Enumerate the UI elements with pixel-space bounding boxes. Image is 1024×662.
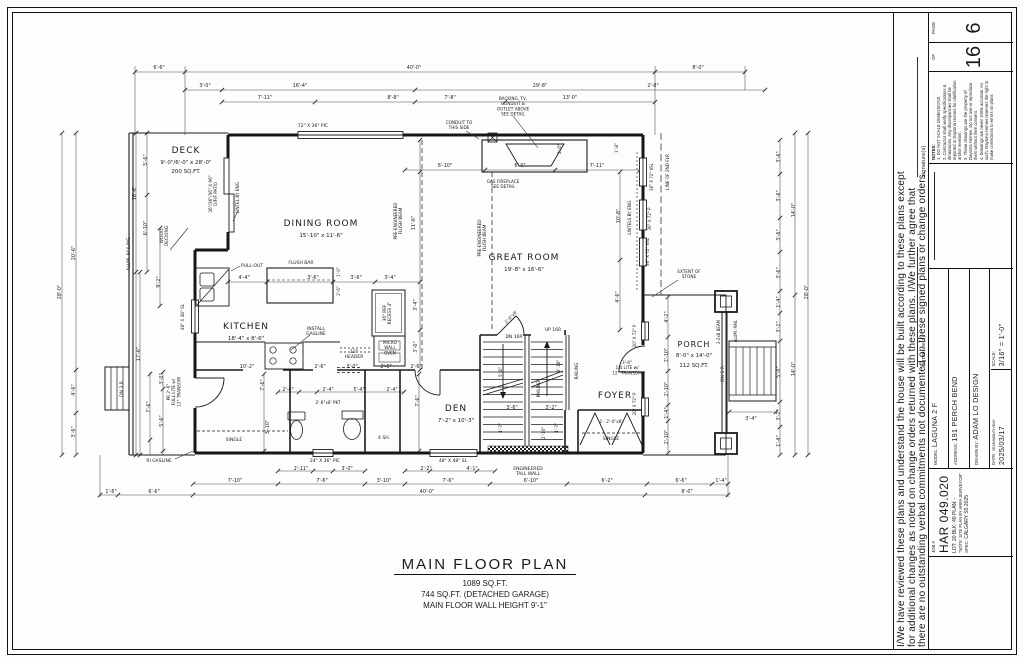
plan-annotation: 3'-6" <box>776 229 782 240</box>
drawn-by-value: ADAM LO DESIGN <box>971 374 980 440</box>
date-cell: DATE: YEAR/MONTH/DAY 2025/03/17 <box>991 371 1012 466</box>
date-scale-row: DATE: YEAR/MONTH/DAY 2025/03/17 SCALE: 3… <box>990 269 1013 468</box>
plan-annotation: 8'-0" x 14'-0" <box>676 353 712 359</box>
plan-garage-sqft: 744 SQ.FT. (DETACHED GARAGE) <box>280 589 690 600</box>
plan-annotation: 2'-6" <box>380 364 391 370</box>
plan-annotation: UP 16R <box>545 327 561 333</box>
plan-annotation: 48" X 48" SL <box>180 303 185 330</box>
plan-annotation: 2'-4" <box>386 387 397 393</box>
spec-label: SPEC: <box>964 540 969 553</box>
plan-annotation: DEN <box>445 404 467 414</box>
plan-annotation: 3'-6" <box>776 151 782 162</box>
plan-annotation: LINE OF 2ND FLR <box>665 154 670 190</box>
plan-annotation: 3'-2" <box>776 321 782 332</box>
plan-annotation: 112 SQ.FT. <box>679 363 709 369</box>
plan-title: MAIN FLOOR PLAN <box>394 556 577 575</box>
plan-annotation: 200 SQ.FT. <box>171 169 201 175</box>
plan-annotation: 2'-10" <box>664 348 670 362</box>
plan-annotation: 1'-8" <box>614 143 619 153</box>
plan-annotation: DINING ROOM <box>284 219 359 229</box>
plan-annotation: 3'-0" <box>159 373 165 384</box>
plan-annotation: 1'-4" <box>664 407 670 418</box>
plan-annotation: 3'-6" <box>506 405 517 411</box>
plan-annotation: 7'-8" <box>444 95 455 101</box>
plan-annotation: 36" REFRECESS 4" <box>382 302 392 324</box>
plan-annotation: 4 SH. <box>378 435 390 441</box>
plan-annotation: 3'-6" <box>776 190 782 201</box>
plan-annotation: 19'-8" x 16'-6" <box>504 267 544 273</box>
scale-label: SCALE: <box>991 351 996 366</box>
plan-annotation: 1'-4" <box>715 478 726 484</box>
plan-annotation: RAILING <box>574 363 579 380</box>
plan-annotation: 7'-6" <box>415 395 421 406</box>
job-box: JOB # HAR 049.020 LOT: 20 BLK: 49 PLAN: … <box>929 468 1013 556</box>
plan-annotation: 5'-4" <box>353 387 364 393</box>
plan-annotation: 4'-7" <box>554 423 559 433</box>
plan-annotation: 16'-6" <box>132 186 138 200</box>
plan-annotation: 7'-11" <box>258 95 272 101</box>
plan-annotation: 6'-10" <box>438 163 452 169</box>
plan-annotation: 1'-0" <box>336 267 341 277</box>
plan-annotation: 2'-0" <box>647 83 658 89</box>
disclaimer-line: I/We have reviewed these plans and under… <box>897 14 908 647</box>
title-block: JOB # HAR 049.020 LOT: 20 BLK: 49 PLAN: … <box>929 14 1012 647</box>
plan-annotation: 28'-0" <box>804 285 810 299</box>
plan-annotation: KITCHEN <box>223 322 269 332</box>
page-total: 16 <box>936 46 1013 68</box>
disclaimer-text: I/We have reviewed these plans and under… <box>896 14 929 647</box>
address-label: ADDRESS: <box>953 443 958 465</box>
stairs <box>483 341 568 453</box>
plan-annotation: 7'-6" <box>260 379 266 390</box>
plan-annotation: WOODDECKING <box>159 225 170 246</box>
plan-annotation: 6'-6" <box>148 489 159 495</box>
plan-annotation: 3'-0" <box>341 466 352 472</box>
plan-annotation: 5'-6" <box>143 154 149 165</box>
title-block-row: JOB # HAR 049.020 LOT: 20 BLK: 49 PLAN: … <box>929 14 1013 647</box>
fireplace <box>482 133 587 172</box>
job-number: HAR 049.020 <box>937 472 951 553</box>
plan-sqft: 1089 SQ.FT. <box>280 578 690 589</box>
plan-annotation: 20" X 72" P <box>632 324 637 347</box>
plan-annotation: 3'-4" <box>745 416 756 422</box>
plan-annotation: 3'-6" <box>776 267 782 278</box>
plan-annotation: 17'-6" <box>136 347 142 361</box>
model-row: MODEL: LAGUNA 2 F <box>929 269 949 468</box>
plan-annotation: 2'-6"x8' <box>503 309 518 324</box>
plan-annotation: 2'-6" <box>314 364 325 370</box>
site-note: "NOTE: SITE PLAN BY AREA SURVEYOR" <box>958 469 963 556</box>
plan-annotation: 7'-10" <box>228 478 242 484</box>
plan-annotation: 2'-10" <box>541 427 546 439</box>
plan-annotation: 6'-0" <box>514 163 525 169</box>
plan-annotation: 40'-0" <box>407 65 421 71</box>
spec-value: CALGARY S5 2025 <box>964 495 970 539</box>
plan-annotation: 72" X 36" PIC <box>298 123 328 129</box>
plan-annotation: 2'-0" <box>557 144 562 154</box>
model-box: MODEL: LAGUNA 2 F ADDRESS: 191 PERCH BEN… <box>929 268 1013 468</box>
plan-annotation: 6'-6" <box>675 478 686 484</box>
plan-title-block: MAIN FLOOR PLAN 1089 SQ.FT. 744 SQ.FT. (… <box>280 556 690 611</box>
plan-annotation: PR 2'-6"FULL LITE w/12" TRANSOM <box>166 377 181 407</box>
plan-annotation: 7'-11" <box>590 163 604 169</box>
date-sublabel: YEAR/MONTH/DAY <box>992 419 996 451</box>
plan-annotation: ENGINEEREDTALL WALL <box>513 466 543 477</box>
plan-annotation: 3'-6" <box>307 275 318 281</box>
plan-annotation: 16'-4" <box>293 83 307 89</box>
plan-annotation: 2'-4" <box>322 387 333 393</box>
plan-annotation: 8'-8" <box>387 95 398 101</box>
plan-annotation: 4'-7" <box>498 423 503 433</box>
drawing-sheet: DECK9'-0"/6'-0" x 28'-0"200 SQ.FT.DINING… <box>0 0 1024 662</box>
plan-annotation: 1'-6" <box>105 489 116 495</box>
plan-annotation: LINTEL BY ENG. <box>235 181 240 213</box>
plan-annotation: 6'-10" <box>143 221 149 235</box>
plan-annotation: DECK <box>172 146 201 156</box>
plan-annotation: 6'-6" <box>153 65 164 71</box>
plan-annotation: 6'-10" <box>524 478 538 484</box>
plan-annotation: EXTENT OFSTONE <box>677 269 701 279</box>
plan-annotation: 4'-6" <box>615 291 621 302</box>
plan-wall-height: MAIN FLOOR WALL HEIGHT 9'-1" <box>280 600 690 611</box>
plan-annotation: 12"HEADER <box>345 349 364 360</box>
plan-annotation: GAS FIREPLACESEE DETAIL <box>487 179 520 189</box>
plan-annotation: 6'-2" <box>601 478 612 484</box>
plan-annotation: 3'-6" <box>350 275 361 281</box>
plan-annotation: ALUM. RAILING <box>126 237 132 271</box>
page-box: PAGE 6 <box>929 14 1013 42</box>
plan-annotation: 3'-4" <box>413 299 419 310</box>
plan-annotation: 2'-4" <box>282 387 293 393</box>
disclaimer-strip: I/We have reviewed these plans and under… <box>896 14 928 647</box>
plan-annotation: 48" X 48" SL <box>439 458 468 464</box>
plan-annotation: 24" X 36" PIC <box>310 458 340 464</box>
plan-annotation: 5'-0" <box>776 366 782 377</box>
plan-annotation: 18'-4" x 8'-6" <box>228 336 264 342</box>
plan-annotation: PULL-OUT <box>241 263 264 269</box>
page-number: 6 <box>936 22 1013 33</box>
bath-fixtures <box>288 411 363 440</box>
date-label: DATE: <box>991 453 996 465</box>
plan-annotation: RI GASLINE <box>146 458 172 464</box>
plan-annotation: 36" X 72" P <box>647 207 652 230</box>
dimension-lines <box>62 66 808 497</box>
plan-annotation: 3'-0" <box>199 83 210 89</box>
plan-annotation: 14'-0" <box>791 362 797 376</box>
plan-annotation: PRE-ENGINEEREDFLUSH BEAM <box>393 202 403 239</box>
plan-annotation: 9'-2" <box>156 276 162 287</box>
plan-annotation: DN 16R <box>505 334 522 340</box>
scale-cell: SCALE: 3/16" = 1'-0" <box>991 272 1012 371</box>
plan-annotation: 3'-4" <box>384 275 395 281</box>
plan-annotation: 9'-0"/6'-0" x 28'-0" <box>160 160 211 166</box>
plan-annotation: 2'-6"x8' PKT <box>315 400 340 405</box>
plan-annotation: 29'-8" <box>533 83 547 89</box>
plan-annotation: 36"/36"/36" X 96"O/F/F PATIO <box>208 175 218 212</box>
divider-disclaimer <box>893 12 894 650</box>
note-item: 3. These drawings are the property of Da… <box>963 75 978 160</box>
plan-annotation: PRE-ENGINEEREDFLUSH BEAM <box>477 219 487 256</box>
plan-annotation: 3'-2" <box>545 405 556 411</box>
plan-annotation: 10'-2" <box>240 364 254 370</box>
plan-annotation: 3'-6" <box>71 426 77 437</box>
note-item: 1. DO NOT SCALE DIMENSIONS <box>936 75 941 160</box>
plan-annotation: 2'-10" <box>664 382 670 396</box>
plan-annotation: RAILING <box>536 381 541 398</box>
title-block-blank-box <box>929 556 1013 647</box>
model-label: MODEL: <box>933 449 938 465</box>
plan-annotation: 2'-2" <box>420 466 431 472</box>
plan-annotation: 2'-6" <box>336 286 341 296</box>
plan-annotation: SINGLE <box>226 437 243 443</box>
plan-annotation: 3'-0" <box>413 341 419 352</box>
plan-annotation: FOYER <box>598 391 632 401</box>
plan-annotation: 3-2x8 BEAM <box>716 319 721 344</box>
date-value: 2025/03/17 <box>997 371 1006 466</box>
plan-annotation: 7'-2" x 10'-3" <box>438 418 474 424</box>
plan-annotation: 13'-0" <box>563 95 577 101</box>
plan-annotation: 20'-6" <box>71 246 77 260</box>
plan-annotation: DN 5 R <box>720 366 726 382</box>
plan-annotation: 8'-10" <box>556 360 561 373</box>
note-item: 2. Contractor shall verify specification… <box>942 75 962 160</box>
note-item: 4. Drawings are never 100% accurate. As … <box>979 75 994 160</box>
plan-annotation: INSTALLGASLINE <box>306 326 326 337</box>
plan-annotation: 4'-6" <box>71 384 77 395</box>
plan-annotation: MICROWALLOVEN <box>383 340 398 355</box>
signature-rule <box>934 172 935 260</box>
address-value: 191 PERCH BEND <box>950 376 959 441</box>
plan-annotation: 40'-0" <box>420 489 434 495</box>
plan-annotation: 4'-2" <box>664 311 670 322</box>
plan-annotation: 36" X 72" VSL <box>649 162 654 191</box>
plan-annotation: 14'-0" <box>791 203 797 217</box>
plan-annotation: 5'-0" <box>498 367 503 377</box>
plan-annotation: 3'-2" <box>776 409 782 420</box>
plan-annotation: 3'-0" <box>346 364 357 370</box>
plan-annotation: 2 - 2'-0"x8' <box>599 419 622 424</box>
plan-annotation: SINGLE <box>603 436 620 442</box>
plan-annotation: 1'-4" <box>776 296 782 307</box>
scale-value: 3/16" = 1'-0" <box>997 272 1006 367</box>
plan-annotation: 1'-4" <box>776 435 782 446</box>
plan-annotation: 3'-10" <box>265 420 271 434</box>
plan-annotation: 7'-6" <box>146 401 152 412</box>
notes-box: NOTES: 1. DO NOT SCALE DIMENSIONS 2. Con… <box>929 71 1013 163</box>
signature-label: signature(s) <box>917 57 930 177</box>
plan-annotation: 3'-0"1/4 LITE w/12" TRANSOM <box>612 360 642 375</box>
plan-annotation: PORCH <box>678 340 711 349</box>
plan-annotation: 11'-6" <box>411 216 417 230</box>
plan-annotation: CONDUIT TOTHIS SIDE <box>446 120 473 130</box>
plan-annotation: FLUSH BAR <box>288 260 313 266</box>
plan-annotation: 8'-0" <box>692 65 703 71</box>
plan-annotation: 2'-10" <box>664 430 670 444</box>
plan-subtitle: 1089 SQ.FT. 744 SQ.FT. (DETACHED GARAGE)… <box>280 578 690 611</box>
signature-label: signature(s) <box>917 247 930 367</box>
plan-annotation: 4'-4" <box>238 275 249 281</box>
plan-annotation: 8'-0" <box>681 489 692 495</box>
drawn-by-row: DRAWN BY: ADAM LO DESIGN <box>970 269 990 468</box>
plan-annotation: 20" X 72" P <box>632 392 637 415</box>
plan-annotation: 5'-6" <box>159 415 165 426</box>
plan-annotation: 2'-11" <box>294 466 308 472</box>
of-box: OF 16 <box>929 42 1013 71</box>
plan-annotation: BACKING, TV,CONDUIT &OUTLET ABOVESEE DET… <box>497 96 530 117</box>
beam-lines <box>422 133 661 370</box>
plan-annotation: 3'-10" <box>377 478 391 484</box>
drawn-by-label: DRAWN BY: <box>974 441 979 465</box>
plan-annotation: 28'-0" <box>57 285 63 299</box>
plan-annotations: DECK9'-0"/6'-0" x 28'-0"200 SQ.FT.DINING… <box>57 65 810 495</box>
plan-annotation: LINTELS BY ENG. <box>627 199 632 234</box>
plan-annotation: 2'-6" <box>410 364 421 370</box>
plan-annotation: 7'-6" <box>442 478 453 484</box>
plan-annotation: 15'-10" x 11'-6" <box>299 233 342 239</box>
job-label: JOB # <box>931 472 936 553</box>
plan-annotation: DN 3 R <box>119 381 125 397</box>
plan-annotation: 4'-1" <box>466 466 477 472</box>
plan-annotation: 10'-8" <box>616 209 622 223</box>
address-row: ADDRESS: 191 PERCH BEND <box>949 269 969 468</box>
signature-box <box>929 163 1013 268</box>
plan-annotation: GREAT ROOM <box>489 253 560 263</box>
spec-line: SPEC: CALGARY S5 2025 <box>963 469 971 556</box>
model-value: LAGUNA 2 F <box>930 403 939 448</box>
plan-annotation: ALUM. RAIL <box>733 319 738 342</box>
plan-annotation: 36" X 72" VSL <box>645 237 650 266</box>
plan-annotation: 7'-6" <box>316 478 327 484</box>
